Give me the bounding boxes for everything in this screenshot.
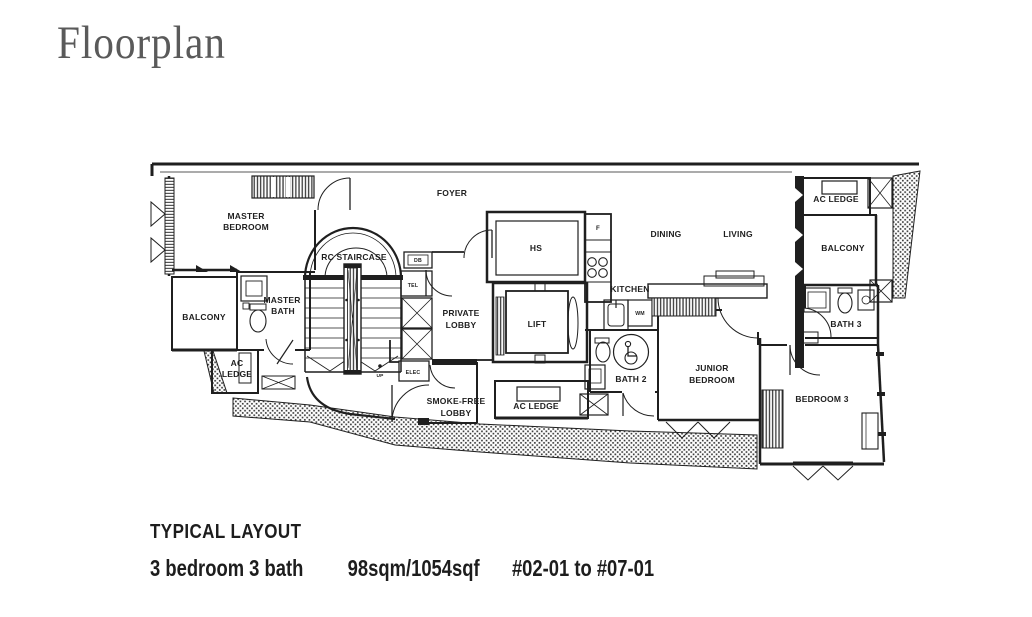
label-up: UP <box>376 373 384 379</box>
room-label-master-bath-line1: MASTER <box>263 295 300 305</box>
sliding-door-icon <box>230 265 242 272</box>
room-label-master-bath-line2: BATH <box>271 306 295 316</box>
room-label-private-lobby-line2: LOBBY <box>446 320 477 330</box>
door-arc <box>718 298 758 338</box>
room-label-balcony-right: BALCONY <box>821 243 865 253</box>
room-label-rc-staircase: RC STAIRCASE <box>321 252 387 262</box>
room-label-dining: DINING <box>651 229 682 239</box>
room-label-private-lobby-line1: PRIVATE <box>443 308 480 318</box>
label-db: DB <box>414 258 422 264</box>
door-arc <box>426 270 452 296</box>
room-label-living: LIVING <box>723 229 753 239</box>
rc-staircase-icon <box>303 228 403 374</box>
room-label-junior-bedroom-line2: BEDROOM <box>689 375 735 385</box>
room-labels: MASTER BEDROOM FOYER RC STAIRCASE MASTER… <box>182 188 865 418</box>
bedroom3-area <box>760 332 886 480</box>
room-label-bath2: BATH 2 <box>615 374 646 384</box>
room-label-bedroom3: BEDROOM 3 <box>795 394 848 404</box>
sliding-door-icon <box>196 265 208 272</box>
label-tel: TEL <box>408 283 419 289</box>
lift-door <box>496 297 504 355</box>
bath3-area <box>801 285 878 338</box>
door-arc <box>266 339 293 364</box>
wardrobe-icon <box>252 176 314 198</box>
label-elec: ELEC <box>406 370 421 376</box>
toilet-icon <box>838 288 852 293</box>
label-wm: WM <box>635 311 645 317</box>
layout-details: 3 bedroom 3 bath 98sqm/1054sqf #02-01 to… <box>150 555 654 582</box>
room-label-ac-ledge-left-line1: AC <box>231 358 244 368</box>
unit-spec: 3 bedroom 3 bath <box>150 555 303 581</box>
counterweight-icon <box>568 297 578 349</box>
unit-area: 98sqm/1054sqf <box>348 555 480 581</box>
desk-icon <box>862 413 878 449</box>
room-label-master-bedroom-line2: BEDROOM <box>223 222 269 232</box>
room-label-smoke-free-lobby-line1: SMOKE-FREE <box>427 396 486 406</box>
wardrobe-icon <box>652 298 716 316</box>
tv-icon <box>716 271 754 278</box>
unit-range: #02-01 to #07-01 <box>512 555 654 581</box>
door-leaf <box>432 359 477 365</box>
door-arc <box>392 385 429 422</box>
room-label-ac-ledge-right: AC LEDGE <box>813 194 859 204</box>
room-label-lift: LIFT <box>528 319 547 329</box>
bath2-area <box>580 316 658 420</box>
label-fridge: F <box>596 225 600 232</box>
room-label-balcony-left: BALCONY <box>182 312 226 322</box>
room-label-ac-ledge-left-line2: LEDGE <box>222 369 252 379</box>
service-closets <box>399 252 432 381</box>
room-label-junior-bedroom-line1: JUNIOR <box>695 363 728 373</box>
lobby-area <box>390 230 493 423</box>
room-label-foyer: FOYER <box>437 188 467 198</box>
door-arc <box>318 178 350 210</box>
room-label-smoke-free-lobby-line2: LOBBY <box>441 408 472 418</box>
footer-caption: TYPICAL LAYOUT 3 bedroom 3 bath 98sqm/10… <box>150 521 780 582</box>
room-label-ac-ledge-center: AC LEDGE <box>513 401 559 411</box>
door-arc <box>430 365 455 388</box>
door-arc <box>623 393 654 416</box>
floorplan-page: Floorplan <box>0 0 1032 617</box>
door-arc <box>790 345 820 375</box>
stove-icon <box>588 258 597 267</box>
layout-heading: TYPICAL LAYOUT <box>150 521 686 544</box>
room-label-hs: HS <box>530 243 542 253</box>
room-label-kitchen: KITCHEN <box>610 284 649 294</box>
window-icon <box>793 466 853 480</box>
room-label-master-bedroom-line1: MASTER <box>227 211 264 221</box>
wardrobe-icon <box>762 390 783 448</box>
room-label-bath3: BATH 3 <box>830 319 861 329</box>
